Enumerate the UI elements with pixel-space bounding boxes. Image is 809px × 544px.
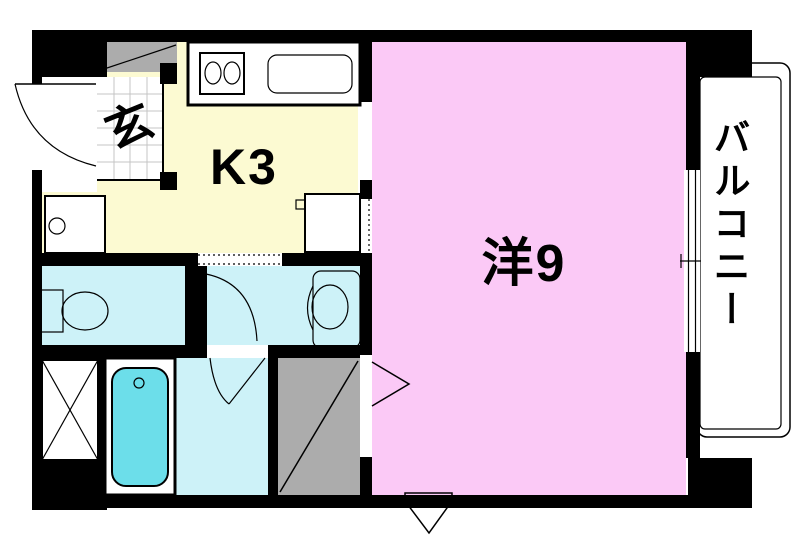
kitchen-label: K3 (210, 142, 278, 192)
bathtub (105, 358, 175, 495)
kitchen-counter (188, 42, 360, 105)
entry-approach (42, 77, 97, 192)
floor-plan: 玄 K3 洋9 バルコニー (0, 0, 809, 544)
bathroom-door-opening (207, 345, 268, 358)
washing-machine-space (45, 196, 105, 253)
closet-door-opening (360, 355, 372, 457)
living-room-label: 洋9 (482, 238, 567, 290)
balcony-label: バルコニー (710, 118, 747, 333)
stove (200, 53, 244, 94)
pipe-space (42, 360, 98, 460)
kitchen-living-opening (358, 102, 372, 180)
bathroom-floor (173, 358, 268, 495)
floor-plan-drawing (0, 0, 809, 544)
washroom-floor (195, 265, 360, 348)
water-heater (296, 194, 360, 252)
